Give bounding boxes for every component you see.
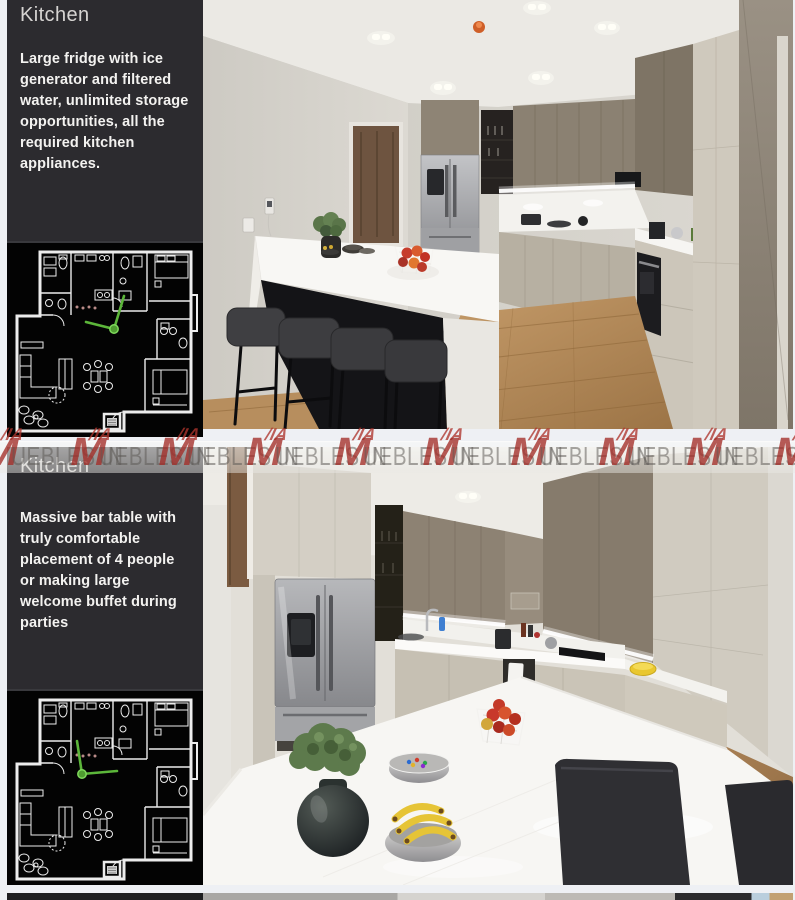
section-title: Kitchen — [7, 447, 203, 478]
under-cabinet-light — [499, 186, 635, 191]
open-shelf-glassware — [481, 110, 513, 194]
kitchen-photo-island — [203, 0, 793, 429]
kitchen-scene-2 — [203, 447, 793, 885]
wood-door — [349, 122, 403, 246]
tall-pantry-cabinets — [693, 0, 793, 429]
floor-plan-thumbnail — [7, 241, 203, 437]
backsplash-counter — [499, 190, 651, 232]
floor-plan-drawing — [7, 243, 203, 435]
listing-page: Kitchen Large fridge with ice generator … — [0, 0, 795, 900]
yellow-bowl — [630, 663, 656, 676]
kitchen-photo-bar-table — [203, 447, 793, 885]
next-section-photo-edge — [203, 893, 793, 900]
next-section-sidebar-edge — [7, 893, 203, 900]
info-sidebar: Kitchen Massive bar table with truly com… — [7, 447, 203, 885]
listing-section-kitchen-1: Kitchen Large fridge with ice generator … — [0, 0, 795, 437]
floor-plan-thumbnail — [7, 689, 203, 885]
camera-position-marker — [86, 296, 124, 329]
section-title: Kitchen — [7, 0, 203, 27]
cabinet-over-fridge — [421, 100, 479, 158]
listing-section-kitchen-2: Kitchen Massive bar table with truly com… — [0, 447, 795, 885]
section-description: Large fridge with ice generator and filt… — [7, 49, 203, 175]
camera-position-dot — [78, 770, 86, 778]
open-shelf-bottles — [375, 505, 403, 641]
smoke-detector-icon — [473, 21, 485, 33]
info-sidebar: Kitchen Large fridge with ice generator … — [7, 0, 203, 437]
floor-plan-drawing — [7, 691, 203, 883]
candy-bowl — [389, 753, 449, 783]
kitchen-scene-1 — [203, 0, 793, 429]
section-description: Massive bar table with truly comfortable… — [7, 508, 203, 634]
camera-position-dot — [110, 325, 118, 333]
